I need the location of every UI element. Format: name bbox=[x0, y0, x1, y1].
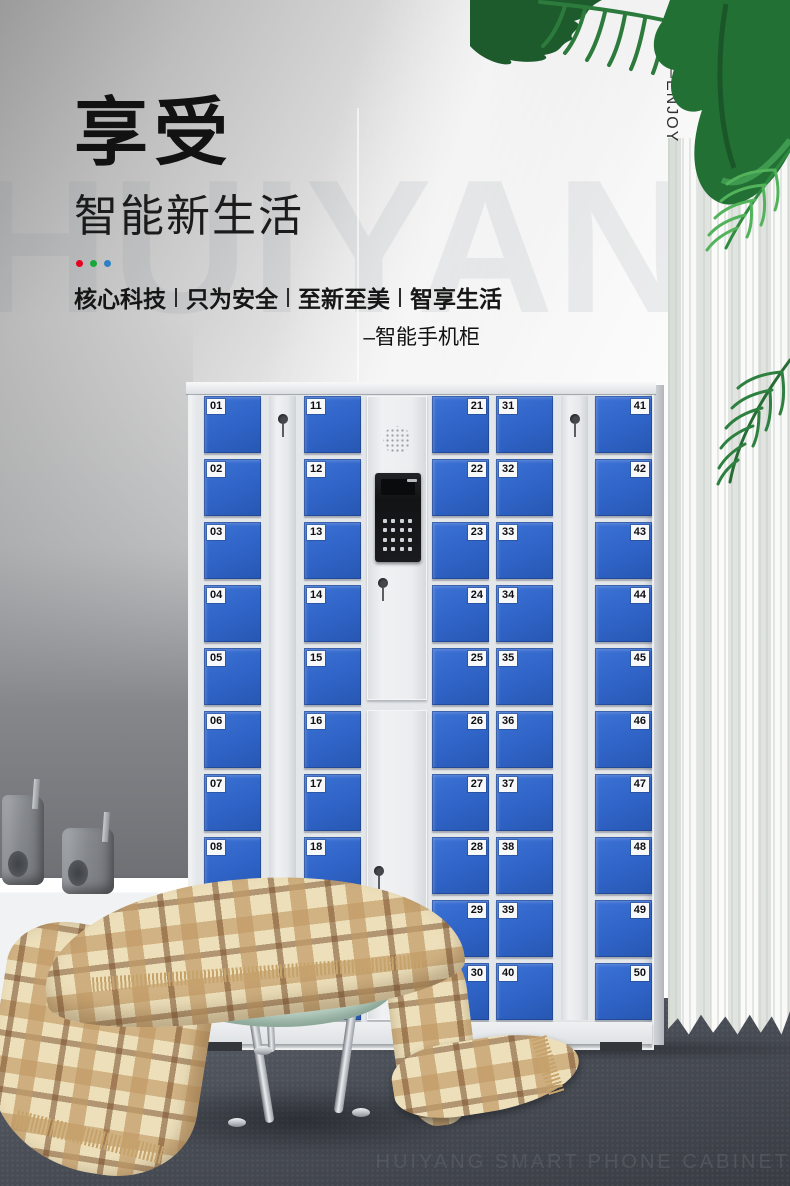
locker-door-49: 49 bbox=[595, 900, 652, 957]
locker-door-36: 36 bbox=[496, 711, 553, 768]
locker-door-45: 45 bbox=[595, 648, 652, 705]
vase-right bbox=[62, 828, 114, 894]
accent-dot bbox=[104, 260, 111, 267]
locker-door-47: 47 bbox=[595, 774, 652, 831]
locker-number: 43 bbox=[631, 525, 649, 540]
locker-number: 06 bbox=[207, 714, 225, 729]
locker-number: 35 bbox=[499, 651, 517, 666]
locker-number: 37 bbox=[499, 777, 517, 792]
locker-door-34: 34 bbox=[496, 585, 553, 642]
accent-dot bbox=[90, 260, 97, 267]
locker-door-37: 37 bbox=[496, 774, 553, 831]
locker-number: 36 bbox=[499, 714, 517, 729]
tagline-segment: 智享生活 bbox=[410, 280, 502, 314]
cabinet-top-edge bbox=[186, 382, 656, 394]
locker-number: 16 bbox=[307, 714, 325, 729]
locker-number: 41 bbox=[631, 399, 649, 414]
locker-number: 42 bbox=[631, 462, 649, 477]
hero-text-block: 享受 智能新生活 核心科技只为安全至新至美智享生活 –智能手机柜 bbox=[74, 96, 514, 351]
locker-door-41: 41 bbox=[595, 396, 652, 453]
tagline-separator bbox=[175, 288, 177, 307]
main-keyhole-icon bbox=[378, 578, 388, 588]
locker-door-12: 12 bbox=[304, 459, 361, 516]
keypad-key bbox=[408, 547, 412, 551]
locker-door-03: 03 bbox=[204, 522, 261, 579]
locker-door-04: 04 bbox=[204, 585, 261, 642]
control-panel bbox=[375, 473, 421, 562]
locker-number: 08 bbox=[207, 840, 225, 855]
locker-number: 14 bbox=[307, 588, 325, 603]
keypad-key bbox=[408, 519, 412, 523]
locker-number: 24 bbox=[468, 588, 486, 603]
accent-dot bbox=[76, 260, 83, 267]
locker-number: 18 bbox=[307, 840, 325, 855]
stool-foot bbox=[254, 1046, 272, 1055]
locker-door-27: 27 bbox=[432, 774, 489, 831]
page-title: 享受 bbox=[74, 96, 514, 170]
locker-number: 13 bbox=[307, 525, 325, 540]
locker-number: 01 bbox=[207, 399, 225, 414]
locker-number: 22 bbox=[468, 462, 486, 477]
locker-number: 40 bbox=[499, 966, 517, 981]
locker-door-16: 16 bbox=[304, 711, 361, 768]
locker-number: 45 bbox=[631, 651, 649, 666]
enjoy-vertical-text: —ENJOY bbox=[662, 62, 680, 143]
locker-number: 26 bbox=[468, 714, 486, 729]
keypad-key bbox=[400, 519, 404, 523]
cabinet-side-panel bbox=[654, 385, 664, 1045]
locker-door-35: 35 bbox=[496, 648, 553, 705]
locker-number: 12 bbox=[307, 462, 325, 477]
keypad-key bbox=[400, 538, 404, 542]
locker-number: 17 bbox=[307, 777, 325, 792]
locker-number: 04 bbox=[207, 588, 225, 603]
speaker-grille-icon bbox=[383, 426, 411, 454]
locker-door-32: 32 bbox=[496, 459, 553, 516]
locker-door-46: 46 bbox=[595, 711, 652, 768]
locker-door-17: 17 bbox=[304, 774, 361, 831]
locker-number: 27 bbox=[468, 777, 486, 792]
keypad-key bbox=[391, 538, 395, 542]
accent-dots bbox=[74, 260, 514, 268]
lock-strip-right bbox=[561, 396, 588, 1020]
keypad-key bbox=[408, 528, 412, 532]
locker-number: 11 bbox=[307, 399, 325, 414]
bottom-caption: HUIYANG SMART PHONE CABINET bbox=[376, 1151, 790, 1174]
locker-door-01: 01 bbox=[204, 396, 261, 453]
locker-door-26: 26 bbox=[432, 711, 489, 768]
keypad bbox=[383, 519, 413, 553]
keyhole-icon bbox=[570, 414, 580, 424]
vase-decor bbox=[102, 812, 110, 842]
vase-left bbox=[2, 795, 44, 885]
locker-number: 02 bbox=[207, 462, 225, 477]
locker-door-50: 50 bbox=[595, 963, 652, 1020]
tagline-separator bbox=[287, 288, 289, 307]
keypad-key bbox=[383, 519, 387, 523]
locker-number: 39 bbox=[499, 903, 517, 918]
locker-number: 07 bbox=[207, 777, 225, 792]
keypad-key bbox=[383, 538, 387, 542]
locker-door-40: 40 bbox=[496, 963, 553, 1020]
locker-door-39: 39 bbox=[496, 900, 553, 957]
tagline: 核心科技只为安全至新至美智享生活 bbox=[74, 280, 514, 314]
locker-number: 29 bbox=[468, 903, 486, 918]
locker-number: 47 bbox=[631, 777, 649, 792]
keypad-key bbox=[400, 547, 404, 551]
locker-number: 03 bbox=[207, 525, 225, 540]
keypad-key bbox=[383, 547, 387, 551]
locker-number: 30 bbox=[468, 966, 486, 981]
locker-number: 46 bbox=[631, 714, 649, 729]
locker-door-11: 11 bbox=[304, 396, 361, 453]
vase-hole bbox=[68, 860, 88, 886]
keyhole-icon bbox=[278, 414, 288, 424]
locker-door-48: 48 bbox=[595, 837, 652, 894]
keypad-key bbox=[391, 519, 395, 523]
locker-door-14: 14 bbox=[304, 585, 361, 642]
locker-number: 38 bbox=[499, 840, 517, 855]
stool-foot bbox=[352, 1108, 370, 1117]
locker-number: 32 bbox=[499, 462, 517, 477]
lower-keyhole-icon bbox=[374, 866, 384, 876]
vase-hole bbox=[8, 851, 28, 877]
locker-door-28: 28 bbox=[432, 837, 489, 894]
keypad-key bbox=[383, 528, 387, 532]
locker-door-06: 06 bbox=[204, 711, 261, 768]
locker-door-13: 13 bbox=[304, 522, 361, 579]
keypad-key bbox=[408, 538, 412, 542]
cabinet-foot-right bbox=[600, 1042, 642, 1051]
vase-decor bbox=[32, 779, 40, 809]
locker-door-24: 24 bbox=[432, 585, 489, 642]
locker-door-38: 38 bbox=[496, 837, 553, 894]
locker-number: 23 bbox=[468, 525, 486, 540]
locker-door-05: 05 bbox=[204, 648, 261, 705]
locker-number: 31 bbox=[499, 399, 517, 414]
locker-number: 05 bbox=[207, 651, 225, 666]
locker-door-43: 43 bbox=[595, 522, 652, 579]
tagline-segment: 只为安全 bbox=[186, 280, 278, 314]
tagline-segment: 核心科技 bbox=[74, 280, 166, 314]
locker-number: 15 bbox=[307, 651, 325, 666]
page-subtitle: 智能新生活 bbox=[74, 180, 514, 244]
locker-door-21: 21 bbox=[432, 396, 489, 453]
locker-door-22: 22 bbox=[432, 459, 489, 516]
product-label: –智能手机柜 bbox=[74, 321, 480, 351]
locker-number: 25 bbox=[468, 651, 486, 666]
stool-foot bbox=[228, 1118, 246, 1127]
locker-number: 34 bbox=[499, 588, 517, 603]
camera-lens-icon bbox=[407, 479, 417, 482]
locker-number: 49 bbox=[631, 903, 649, 918]
locker-door-42: 42 bbox=[595, 459, 652, 516]
keypad-key bbox=[391, 528, 395, 532]
locker-door-07: 07 bbox=[204, 774, 261, 831]
locker-door-31: 31 bbox=[496, 396, 553, 453]
poster: HUIYANG 享受 智能新生活 核心科技只为安全至新至美智享生活 –智能手机柜… bbox=[0, 0, 790, 1186]
locker-number: 21 bbox=[468, 399, 486, 414]
locker-door-23: 23 bbox=[432, 522, 489, 579]
locker-number: 44 bbox=[631, 588, 649, 603]
locker-number: 33 bbox=[499, 525, 517, 540]
locker-door-33: 33 bbox=[496, 522, 553, 579]
tagline-segment: 至新至美 bbox=[298, 280, 390, 314]
locker-number: 28 bbox=[468, 840, 486, 855]
locker-door-15: 15 bbox=[304, 648, 361, 705]
locker-door-02: 02 bbox=[204, 459, 261, 516]
keypad-key bbox=[400, 528, 404, 532]
locker-door-25: 25 bbox=[432, 648, 489, 705]
locker-number: 48 bbox=[631, 840, 649, 855]
keypad-key bbox=[391, 547, 395, 551]
locker-door-44: 44 bbox=[595, 585, 652, 642]
locker-number: 50 bbox=[631, 966, 649, 981]
curtain bbox=[668, 138, 790, 1038]
tagline-separator bbox=[399, 288, 401, 307]
